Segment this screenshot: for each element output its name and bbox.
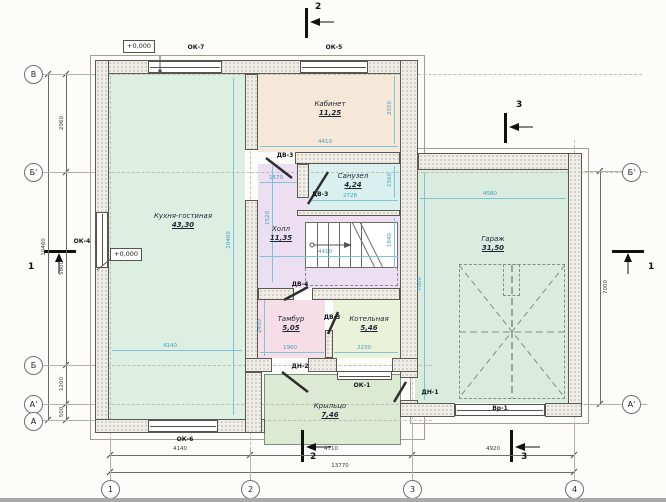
axis-circle-2: 2 xyxy=(241,480,260,499)
dim-hall-opening: 1570 xyxy=(269,175,283,181)
dim-hall-w: 4410 xyxy=(318,249,332,255)
axis-line-1 xyxy=(110,66,111,480)
dim-kitchen-w: 4140 xyxy=(163,343,177,349)
wall-kitchen-hall-lower xyxy=(245,200,258,372)
window-glass-line xyxy=(302,67,366,68)
window-ok7 xyxy=(148,61,222,73)
section-2-bottom-label: 2 xyxy=(310,452,316,462)
dim-right-total: 7000 xyxy=(603,280,609,294)
label-porch: Крыльцо 7,46 xyxy=(314,402,347,420)
label-garage: Гараж 31,50 xyxy=(481,235,504,253)
ext-line xyxy=(44,74,94,75)
room-name: Гараж xyxy=(481,235,504,244)
label-kabinet: Кабинет 11,25 xyxy=(314,100,345,118)
wall-row-b-1 xyxy=(245,358,272,372)
dim-sanuzel-w: 2728 xyxy=(343,193,357,199)
label-hall: Холл 11,35 xyxy=(270,225,292,243)
ext-line xyxy=(44,172,94,173)
room-area: 5,05 xyxy=(278,324,305,333)
window-glass-line xyxy=(150,67,220,68)
wall-garage-bottom-right-stub xyxy=(545,403,582,417)
floor-plan-canvas: 10460 2960 5800 1200 500 4140 4710 4920 … xyxy=(0,0,666,502)
wall-garage-top xyxy=(418,153,582,170)
section-2-top-bar xyxy=(305,8,308,38)
wall-garage-bottom-left-stub xyxy=(400,403,455,417)
axis-circle-1: 1 xyxy=(101,480,120,499)
dim-kotelnaya-w: 2230 xyxy=(357,345,371,351)
label-ok5: ОК-5 xyxy=(326,44,343,51)
room-name: Котельная xyxy=(349,315,388,324)
window-ok4 xyxy=(96,212,108,268)
ext-line xyxy=(110,440,111,480)
section-1-right-bar xyxy=(612,250,644,253)
dim-bottom-seg-2: 4710 xyxy=(324,446,338,452)
dim-left-total: 10460 xyxy=(41,238,47,256)
section-3-bottom-arrowhead xyxy=(515,443,525,451)
cyan-line xyxy=(424,172,425,400)
axis-circle-v: В xyxy=(24,65,43,84)
room-area: 31,50 xyxy=(481,244,504,253)
wall-sanuzel-bottom xyxy=(297,210,400,216)
section-3-bottom-label: 3 xyxy=(521,452,527,462)
ext-line xyxy=(250,448,251,480)
dim-line-left-segments xyxy=(66,74,67,420)
window-ok6 xyxy=(148,420,218,432)
wall-right-house-upper xyxy=(400,60,418,378)
section-3-bottom-bar xyxy=(510,430,513,462)
screenshot-bottom-bar xyxy=(0,498,666,502)
section-3-top-label: 3 xyxy=(516,100,522,110)
room-area: 43,30 xyxy=(154,221,212,230)
cyan-line xyxy=(112,350,242,351)
elevation-mark-top: +0,000 xyxy=(123,40,155,53)
window-ok5 xyxy=(300,61,368,73)
dim-left-seg-1: 2960 xyxy=(59,116,65,130)
stair-tread xyxy=(339,223,340,267)
label-tambur: Тамбур 5,05 xyxy=(278,315,305,333)
label-dv3-kabinet: ДВ-3 xyxy=(277,152,294,159)
room-name: Холл xyxy=(270,225,292,234)
cyan-line xyxy=(272,166,273,282)
label-ok4: ОК-4 xyxy=(74,238,91,245)
label-dv4: ДВ-4 xyxy=(292,281,309,288)
ext-line xyxy=(412,424,413,480)
garage-gate-motor xyxy=(503,264,520,296)
wall-row-b-3 xyxy=(392,358,418,372)
wall-kabinet-bottom xyxy=(295,152,400,164)
window-ok1 xyxy=(337,371,392,380)
dim-left-seg-4: 500 xyxy=(59,407,65,418)
ext-line xyxy=(574,424,575,480)
dim-line-bottom-segments xyxy=(110,455,574,456)
cyan-line xyxy=(394,76,395,144)
wall-garage-right xyxy=(568,153,582,417)
wall-hall-tambur-left xyxy=(258,288,294,300)
section-2-top-label: 2 xyxy=(315,2,321,12)
wall-tambur-kotelnaya xyxy=(325,330,333,358)
ext-line xyxy=(44,365,94,366)
wall-kitchen-hall-upper xyxy=(245,74,258,150)
dim-bottom-total: 13770 xyxy=(331,463,349,469)
section-1-right-arrowhead xyxy=(624,253,632,262)
dim-bottom-seg-3: 4920 xyxy=(486,446,500,452)
dim-garage-h: 7000 xyxy=(417,277,423,291)
dim-left-seg-2: 5800 xyxy=(59,261,65,275)
section-1-left-label: 1 xyxy=(28,262,34,272)
dim-tambur-h: 2450 xyxy=(257,319,263,333)
elevation-mark-kitchen: +0,000 xyxy=(110,248,142,261)
room-area: 7,46 xyxy=(314,411,347,420)
cyan-line xyxy=(260,146,398,147)
dim-kabinet-h: 2550 xyxy=(387,101,393,115)
stair-tread xyxy=(328,223,329,267)
wall-hall-tambur-right xyxy=(312,288,400,300)
cyan-line xyxy=(312,200,398,201)
dim-kitchen-h: 10460 xyxy=(226,231,232,249)
staircase xyxy=(305,222,398,268)
dim-sanuzel-h: 1560 xyxy=(387,173,393,187)
dim-hall-h: 1520 xyxy=(265,211,271,225)
room-name: Кухня-гостиная xyxy=(154,212,212,221)
axis-circle-3: 3 xyxy=(403,480,422,499)
dim-line-right xyxy=(600,171,601,404)
label-vr1: Вр-1 xyxy=(492,405,508,412)
cyan-line xyxy=(233,78,234,415)
dim-line-bottom-total xyxy=(110,472,574,473)
axis-circle-b1-right: Б' xyxy=(622,163,641,182)
room-area: 5,46 xyxy=(349,324,388,333)
section-2-top-arrowhead xyxy=(310,18,320,26)
stair-tread xyxy=(350,223,351,267)
cyan-line xyxy=(334,352,398,353)
axis-circle-a1-right: А' xyxy=(622,395,641,414)
label-dn1: ДН-1 xyxy=(421,389,438,396)
wall-row-b-2 xyxy=(308,358,337,372)
cyan-line xyxy=(260,352,324,353)
stair-tread xyxy=(317,223,318,267)
room-area: 11,25 xyxy=(314,109,345,118)
axis-circle-4: 4 xyxy=(565,480,584,499)
window-glass-line xyxy=(150,426,216,427)
dim-garage-w: 4580 xyxy=(483,191,497,197)
section-3-top-bar xyxy=(504,113,507,143)
ext-line xyxy=(44,420,94,421)
dim-bottom-seg-1: 4140 xyxy=(173,446,187,452)
label-kotelnaya: Котельная 5,46 xyxy=(349,315,388,333)
axis-circle-b: Б xyxy=(24,356,43,375)
cyan-line xyxy=(260,256,398,257)
cyan-line xyxy=(394,218,395,268)
room-name: Крыльцо xyxy=(314,402,347,411)
cyan-line xyxy=(260,182,297,183)
room-area: 4,24 xyxy=(338,181,368,190)
label-ok6: ОК-6 xyxy=(177,436,194,443)
label-sanuzel: Санузел 4,24 xyxy=(338,172,368,190)
label-kitchen: Кухня-гостиная 43,30 xyxy=(154,212,212,230)
room-kitchen-living xyxy=(109,74,245,419)
wall-sanuzel-left xyxy=(297,164,309,198)
section-3-top-arrowhead xyxy=(509,123,519,131)
dim-line-left-total xyxy=(48,74,49,420)
room-name: Тамбур xyxy=(278,315,305,324)
label-dn2: ДН-2 xyxy=(291,363,308,370)
label-dv3-sanuzel: ДВ-3 xyxy=(312,191,329,198)
dim-stair-h: 1840 xyxy=(387,233,393,247)
room-name: Кабинет xyxy=(314,100,345,109)
room-name: Санузел xyxy=(338,172,368,181)
cyan-line xyxy=(420,198,566,199)
window-glass-line xyxy=(339,376,390,377)
label-dv3-kotelnaya: ДВ-3 xyxy=(324,314,341,321)
wall-porch-left xyxy=(245,372,262,433)
ext-line xyxy=(44,404,94,405)
dim-left-seg-3: 1200 xyxy=(59,377,65,391)
label-ok7: ОК-7 xyxy=(188,44,205,51)
dim-kabinet-w: 4410 xyxy=(318,139,332,145)
stair-tread xyxy=(361,223,362,267)
cyan-line xyxy=(264,300,265,356)
dim-tambur-w: 1960 xyxy=(283,345,297,351)
axis-circle-a: А xyxy=(24,412,43,431)
label-ok1: ОК-1 xyxy=(354,382,371,389)
stair-dashed-continuation xyxy=(305,268,398,286)
window-glass-line xyxy=(102,214,103,266)
room-area: 11,35 xyxy=(270,234,292,243)
cyan-line xyxy=(394,166,395,198)
wall-top xyxy=(95,60,418,74)
axis-line-v-row xyxy=(42,74,642,75)
section-1-right-label: 1 xyxy=(648,262,654,272)
axis-circle-b1-left: Б' xyxy=(24,163,43,182)
